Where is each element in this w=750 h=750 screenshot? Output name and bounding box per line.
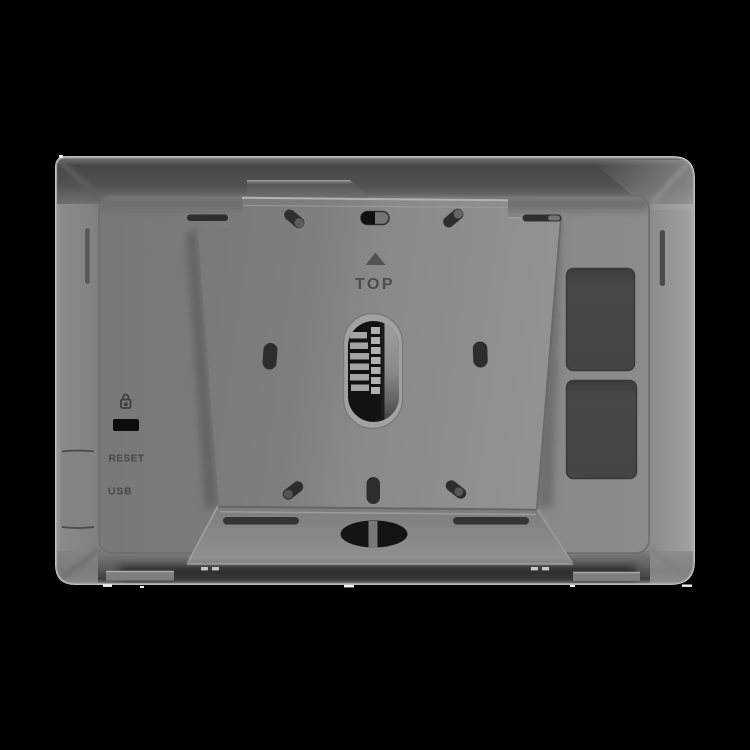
- svg-text:RESET: RESET: [109, 454, 145, 465]
- svg-text:TOP: TOP: [355, 276, 395, 293]
- svg-text:USB: USB: [108, 486, 133, 498]
